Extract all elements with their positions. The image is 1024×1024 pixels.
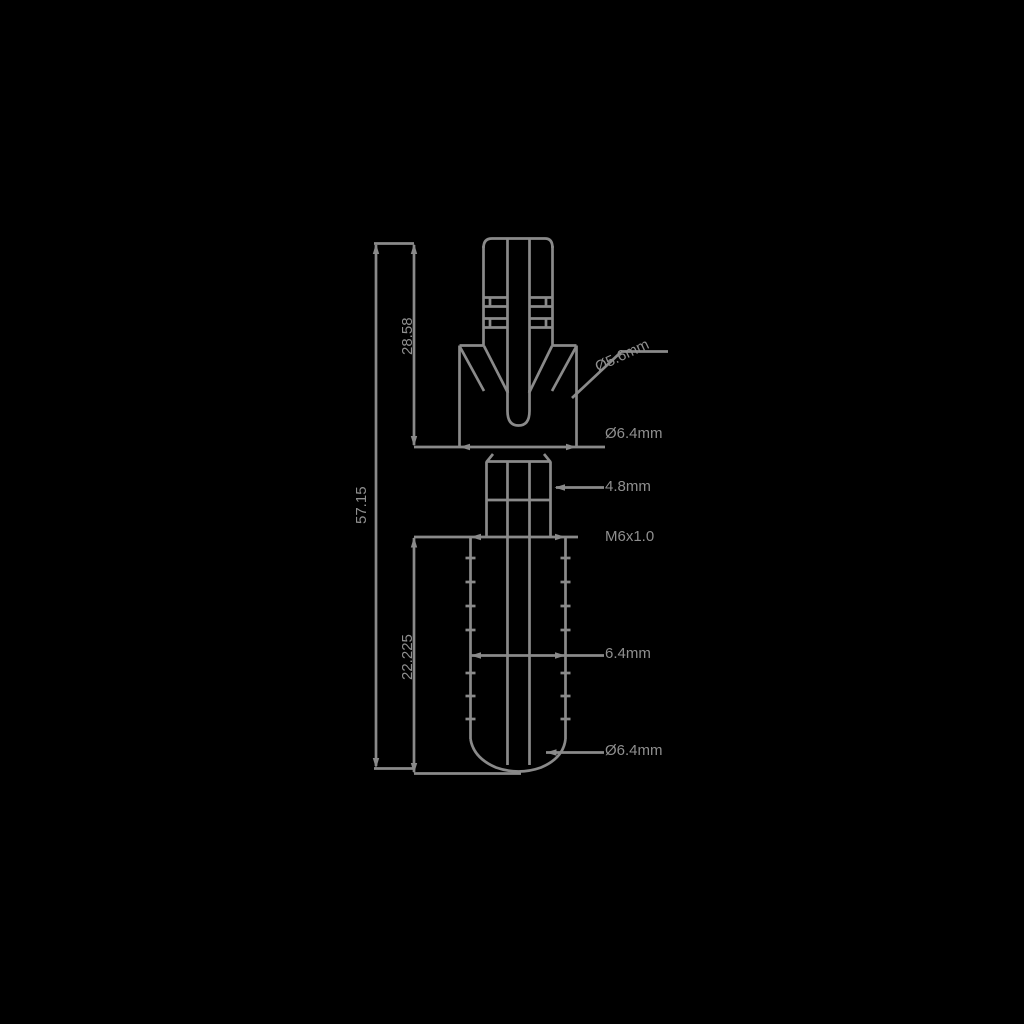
svg-text:Ø6.4mm: Ø6.4mm bbox=[605, 742, 663, 759]
svg-text:M6x1.0: M6x1.0 bbox=[605, 528, 654, 545]
svg-text:Ø5.6mm: Ø5.6mm bbox=[593, 336, 652, 376]
svg-text:6.4mm: 6.4mm bbox=[605, 645, 651, 662]
svg-text:22.225: 22.225 bbox=[399, 634, 416, 680]
svg-text:57.15: 57.15 bbox=[353, 486, 370, 524]
svg-text:Ø6.4mm: Ø6.4mm bbox=[605, 425, 663, 442]
svg-text:4.8mm: 4.8mm bbox=[605, 478, 651, 495]
svg-text:28.58: 28.58 bbox=[399, 317, 416, 355]
